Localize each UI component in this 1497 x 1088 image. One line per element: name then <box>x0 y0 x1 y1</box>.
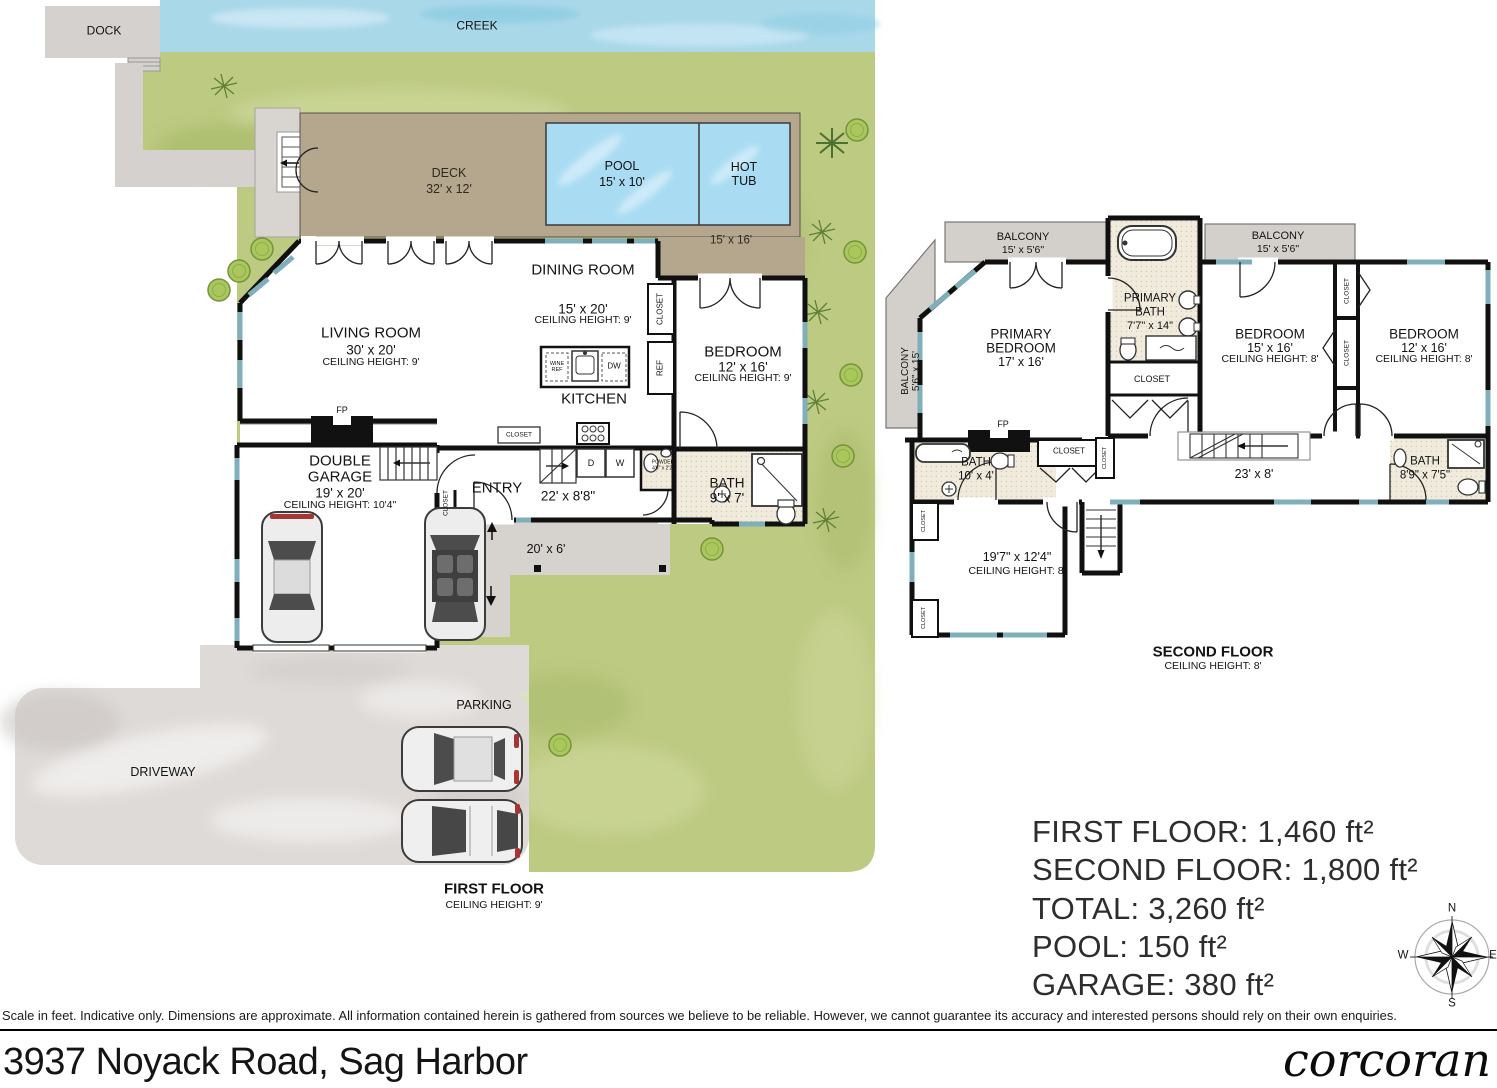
kitchen-label: KITCHEN <box>561 392 627 409</box>
dock-label: DOCK <box>87 24 122 37</box>
parking-label: PARKING <box>456 698 511 712</box>
garage-ceiling: CEILING HEIGHT: 10'4" <box>284 500 397 512</box>
bedroom-right-ceiling: CEILING HEIGHT: 8' <box>1375 354 1472 366</box>
compass-rose <box>1410 916 1493 998</box>
fireplace-first-floor <box>311 416 373 443</box>
fireplace-label-first: FP <box>336 405 348 415</box>
bonus-room-ceiling: CEILING HEIGHT: 8' <box>968 566 1065 578</box>
stat-first-floor: FIRST FLOOR: 1,460 ft² <box>1032 814 1374 850</box>
deck-platform <box>255 108 307 237</box>
deck-dims: 32' x 12' <box>426 182 472 196</box>
balcony-left-name: BALCONY <box>900 347 911 395</box>
compass-west-label: W <box>1398 950 1409 963</box>
balcony-tr-label: BALCONY <box>1252 230 1305 242</box>
primary-bath-line1: PRIMARY <box>1124 293 1176 306</box>
stat-total: TOTAL: 3,260 ft² <box>1032 891 1265 927</box>
garage-car-2 <box>425 508 485 640</box>
pool-patio-dims: 15' x 16' <box>710 235 752 248</box>
bedroom-right-label: BEDROOM <box>1389 326 1459 341</box>
fridge-label: REF <box>657 360 666 376</box>
right-bath-label: BATH <box>1410 456 1440 469</box>
left-bath-dims: 10' x 4' <box>958 471 994 484</box>
living-room-label: LIVING ROOM <box>321 326 421 343</box>
closet-label: CLOSET <box>657 293 666 325</box>
balcony-tr-dims: 15' x 5'6" <box>1257 244 1299 256</box>
hall-closet-label: CLOSET <box>1053 448 1085 457</box>
footer-divider <box>0 1029 1497 1031</box>
right-bath-dims: 8'9" x 7'5" <box>1400 470 1450 483</box>
bedroom-middle-ceiling: CEILING HEIGHT: 8' <box>1221 354 1318 366</box>
primary-bath-closet-label: CLOSET <box>1134 374 1170 384</box>
fireplace-second-floor <box>968 430 1030 452</box>
entry-closet-label: CLOSET <box>442 490 449 516</box>
deck-label: DECK <box>432 166 467 180</box>
fireplace-label-second: FP <box>997 419 1009 429</box>
hot-tub-label: HOT TUB <box>731 160 757 188</box>
entry-label: ENTRY <box>472 481 523 498</box>
dryer-label: D <box>588 458 595 468</box>
primary-bath-line2: BATH <box>1135 307 1165 320</box>
entry-dims: 22' x 8'8" <box>541 488 595 503</box>
compass-north-label: N <box>1448 903 1456 916</box>
dining-room-label: DINING ROOM <box>531 263 634 280</box>
primary-bath-dims: 7'7" x 14" <box>1127 320 1173 332</box>
balcony-left-dims: 5'6" x 15' <box>911 347 922 395</box>
stat-pool: POOL: 150 ft² <box>1032 929 1227 965</box>
bonus-room-dims: 19'7" x 12'4" <box>983 550 1052 564</box>
living-room-ceiling: CEILING HEIGHT: 9' <box>322 357 419 369</box>
first-floor-ceiling: CEILING HEIGHT: 9' <box>445 900 542 912</box>
bonus-closet1-label: CLOSET <box>921 510 927 532</box>
walkway-dims: 20' x 6' <box>527 542 566 556</box>
balcony-left-label: BALCONY5'6" x 15' <box>900 347 922 395</box>
primary-bedroom-line1: PRIMARY <box>990 326 1051 341</box>
property-address: 3937 Noyack Road, Sag Harbor <box>3 1041 528 1084</box>
first-floor-title: FIRST FLOOR <box>444 882 544 899</box>
powder-room-label: POWDER 4'6" x 2'2" <box>652 460 675 471</box>
balcony-tl-dims: 15' x 5'6" <box>1002 245 1044 257</box>
driveway-label: DRIVEWAY <box>130 765 195 779</box>
garage-car-1 <box>262 512 322 642</box>
primary-bedroom-dims: 17' x 16' <box>998 355 1044 369</box>
bedrooms-closet2-label: CLOSET <box>1343 340 1350 366</box>
bedrooms-closet1-label: CLOSET <box>1343 278 1350 304</box>
second-floor-title: SECOND FLOOR <box>1153 645 1274 662</box>
bedroom-ceiling: CEILING HEIGHT: 9' <box>694 373 791 385</box>
pool-label: POOL <box>605 159 640 173</box>
disclaimer-text: Scale in feet. Indicative only. Dimensio… <box>2 1008 1397 1023</box>
second-floor-ceiling: CEILING HEIGHT: 8' <box>1164 661 1261 673</box>
stat-garage: GARAGE: 380 ft² <box>1032 967 1274 1003</box>
parked-car-2 <box>402 800 522 862</box>
washer-label: W <box>616 458 625 468</box>
parked-car-1 <box>402 727 522 791</box>
garage-label-line2: GARAGE <box>308 470 372 487</box>
bath-label: BATH <box>709 475 744 490</box>
bonus-closet2-label: CLOSET <box>921 607 927 629</box>
primary-bedroom-line2: BEDROOM <box>986 340 1056 355</box>
hall-dims: 23' x 8' <box>1235 467 1274 481</box>
kitchen-closet-label: CLOSET <box>506 431 532 438</box>
floor-plan-page: DOCK CREEK DECK 32' x 12' POOL 15' x 10'… <box>0 0 1497 1088</box>
dishwasher-label: DW <box>607 363 620 372</box>
balcony-tl-label: BALCONY <box>997 231 1050 243</box>
bath-dims: 9' x 7' <box>710 490 744 505</box>
creek-label: CREEK <box>456 19 497 32</box>
hall-closet2-label: CLOSET <box>1102 447 1108 469</box>
pool-dims: 15' x 10' <box>599 175 645 189</box>
compass-south-label: S <box>1448 998 1456 1011</box>
dining-room-ceiling: CEILING HEIGHT: 9' <box>534 315 631 327</box>
bedroom-middle-label: BEDROOM <box>1235 326 1305 341</box>
stat-second-floor: SECOND FLOOR: 1,800 ft² <box>1032 852 1418 888</box>
wine-ref-label: WINE REF <box>550 361 564 373</box>
compass-east-label: E <box>1489 950 1497 963</box>
corcoran-logo: corcoran <box>1283 1033 1491 1087</box>
left-bath-label: BATH <box>961 457 991 470</box>
